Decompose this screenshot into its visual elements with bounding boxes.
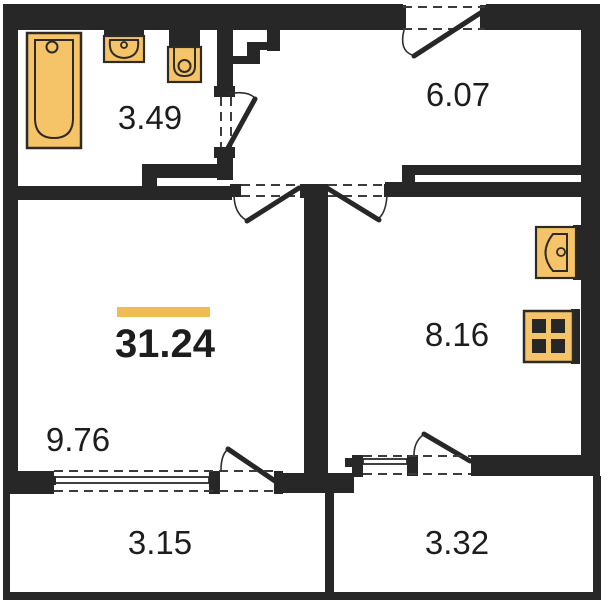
toilet-icon — [168, 29, 201, 82]
total-area-label: 31.24 — [115, 322, 216, 366]
living-room-door — [234, 185, 300, 221]
washbasin-icon — [104, 30, 144, 62]
room-label-hallway: 6.07 — [426, 76, 490, 113]
room-label-bathroom: 3.49 — [118, 99, 182, 136]
living-room-window — [48, 471, 274, 491]
walls — [3, 4, 601, 600]
room-labels: 3.49 6.07 31.24 8.16 9.76 3.15 3.32 — [46, 76, 490, 561]
room-label-balcony-right: 3.32 — [425, 524, 489, 561]
duct-step — [231, 30, 280, 64]
total-area-accent-bar — [117, 307, 210, 317]
floor-plan-canvas: 3.49 6.07 31.24 8.16 9.76 3.15 3.32 — [0, 0, 610, 600]
room-label-balcony-left: 3.15 — [128, 524, 192, 561]
entry-door — [403, 7, 485, 56]
stove-icon — [524, 309, 580, 364]
room-label-living-room: 9.76 — [46, 421, 110, 458]
floor-plan: 3.49 6.07 31.24 8.16 9.76 3.15 3.32 — [0, 0, 610, 600]
kitchen-sink-icon — [536, 225, 581, 280]
bathtub-icon — [27, 33, 81, 148]
living-balcony-door — [221, 449, 275, 481]
bathroom-door — [221, 93, 255, 148]
kitchen-door — [327, 185, 387, 220]
room-label-kitchen: 8.16 — [425, 316, 489, 353]
